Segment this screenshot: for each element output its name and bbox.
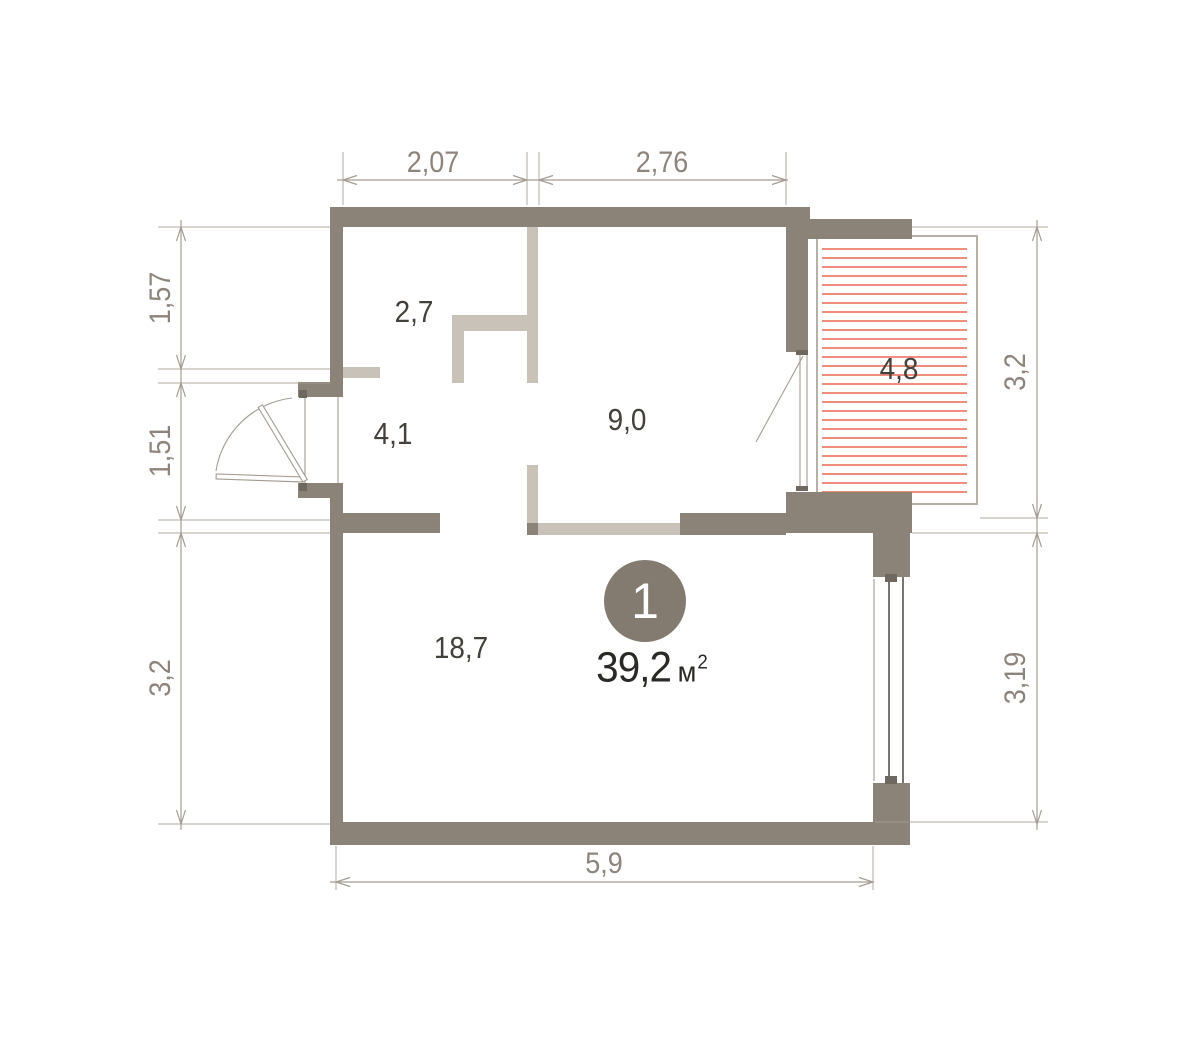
dimension-left-2: 1,51: [144, 425, 178, 478]
wall-bottom: [330, 822, 910, 845]
wall-top: [330, 207, 810, 227]
entrance-door: [216, 390, 338, 491]
wall-below-balcony: [786, 492, 912, 533]
dimension-left-3: 3,2: [144, 659, 178, 697]
total-area: 39,2 м 2: [596, 644, 708, 693]
wall-junction-post: [527, 523, 538, 535]
dimension-right-2: 3,19: [999, 652, 1033, 705]
partition-niche-top: [452, 315, 527, 331]
partition-closet-stub: [343, 367, 380, 378]
room-label-closet: 2,7: [395, 294, 434, 330]
dimension-top-1: 2,07: [407, 146, 460, 180]
partition-niche-left: [452, 331, 464, 383]
total-area-value: 39,2: [596, 644, 671, 693]
partition-bedroom-lower: [527, 465, 538, 523]
partition-closet-right: [527, 227, 538, 383]
total-area-exponent: 2: [697, 652, 707, 675]
room-label-living-room: 18,7: [434, 630, 488, 666]
wall-hallway-bottom: [330, 513, 440, 533]
dimension-bottom-1: 5,9: [585, 847, 623, 881]
room-label-bedroom: 9,0: [608, 402, 647, 438]
dimension-left-1: 1,57: [144, 272, 178, 325]
unit-number-badge: 1: [604, 560, 686, 642]
balcony-door: [756, 350, 808, 491]
wall-left-upper: [330, 207, 343, 382]
total-area-unit: м: [678, 657, 697, 690]
unit-number: 1: [631, 572, 659, 630]
wall-right-upper: [873, 533, 910, 577]
window-right: [874, 574, 903, 784]
wall-pier-upper-right: [786, 227, 808, 352]
door-jamb-top: [298, 382, 343, 397]
dimension-right-1: 3,2: [999, 353, 1033, 391]
wall-left-lower: [330, 498, 343, 822]
room-label-balcony: 4,8: [880, 351, 919, 387]
partition-bedroom-bottom-light: [538, 523, 680, 535]
wall-bedroom-bottom-dark: [680, 513, 786, 535]
wall-balcony-top: [808, 219, 912, 239]
door-jamb-bottom: [298, 483, 343, 498]
dimension-top-2: 2,76: [636, 146, 689, 180]
floor-plan: 2,07 2,76 1,57 1,51 3,2 3,2 3,19 5,9 2,7…: [0, 0, 1200, 1046]
room-label-hallway: 4,1: [374, 416, 413, 452]
